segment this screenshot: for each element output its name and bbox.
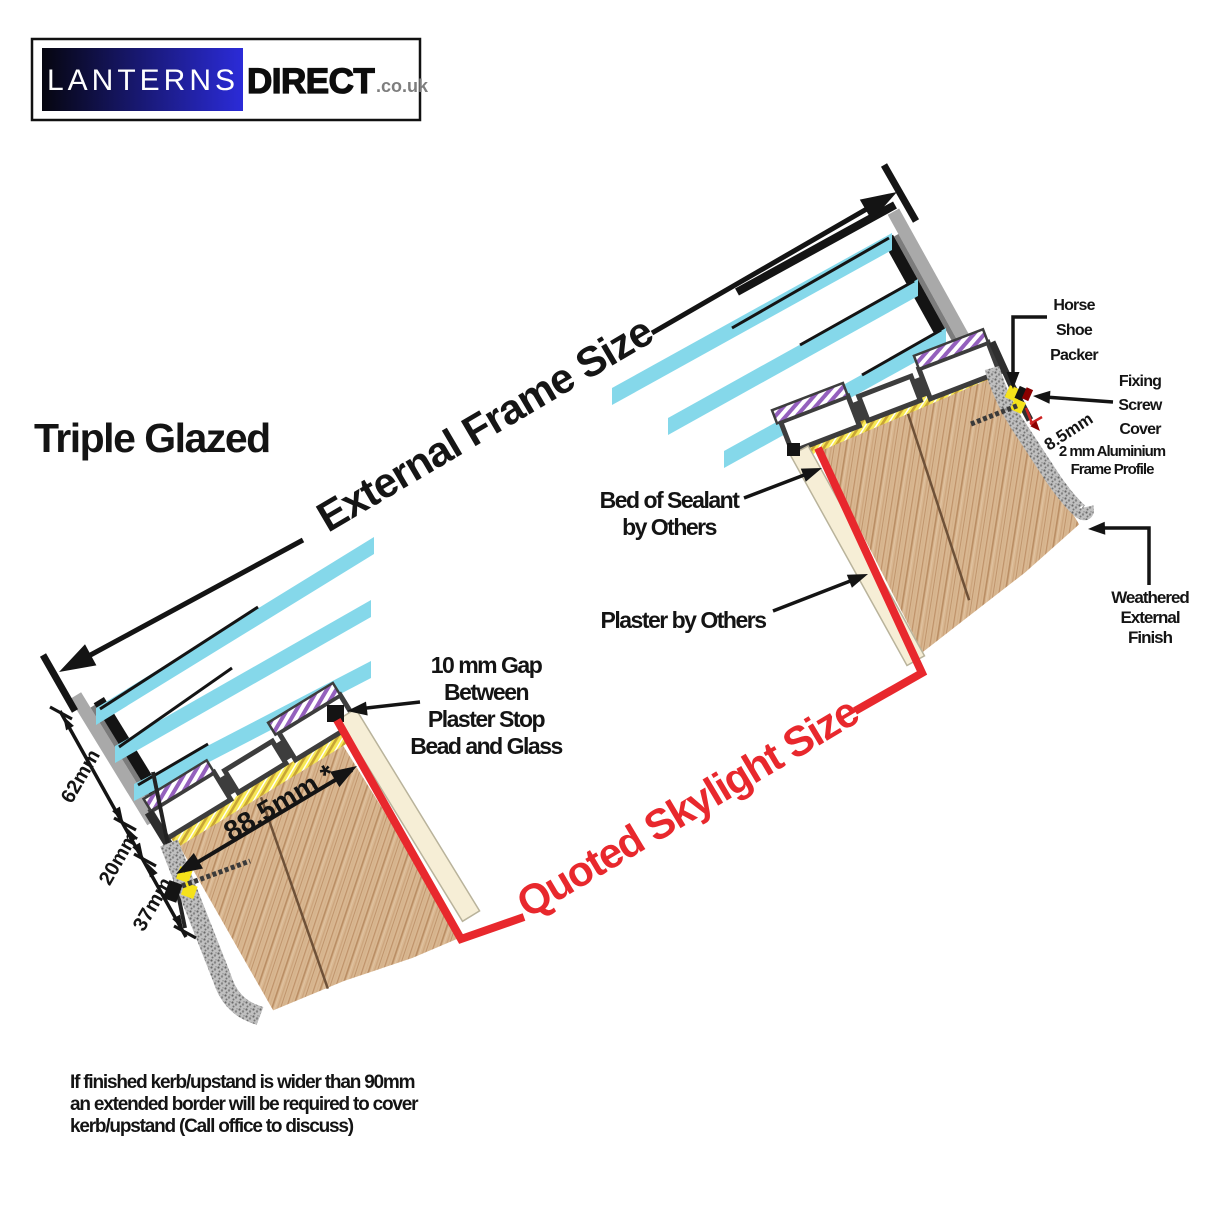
svg-text:an extended border will be req: an extended border will be required to c… — [70, 1094, 419, 1115]
svg-text:Packer: Packer — [1050, 347, 1098, 364]
svg-text:Finish: Finish — [1128, 628, 1173, 647]
svg-text:.co.uk: .co.uk — [376, 76, 429, 96]
svg-text:Bed of Sealant: Bed of Sealant — [600, 487, 741, 513]
svg-text:by Others: by Others — [622, 514, 717, 540]
svg-text:Fixing: Fixing — [1119, 373, 1161, 390]
svg-text:Between: Between — [444, 679, 529, 705]
svg-text:Plaster by Others: Plaster by Others — [601, 607, 767, 633]
svg-text:If finished kerb/upstand is wi: If finished kerb/upstand is wider than 9… — [70, 1072, 415, 1093]
svg-text:Screw: Screw — [1118, 397, 1162, 414]
svg-text:20mm: 20mm — [95, 828, 143, 889]
svg-text:Quoted Skylight Size: Quoted Skylight Size — [509, 688, 866, 927]
svg-text:2 mm Aluminium: 2 mm Aluminium — [1059, 443, 1166, 460]
svg-text:10 mm Gap: 10 mm Gap — [431, 652, 543, 678]
svg-text:Cover: Cover — [1119, 421, 1161, 438]
svg-text:Bead and Glass: Bead and Glass — [410, 733, 562, 759]
svg-text:Triple Glazed: Triple Glazed — [34, 415, 270, 461]
svg-text:Frame Profile: Frame Profile — [1071, 461, 1155, 478]
svg-text:Weathered: Weathered — [1111, 588, 1189, 607]
svg-text:LANTERNS: LANTERNS — [47, 64, 239, 97]
svg-text:Shoe: Shoe — [1056, 322, 1093, 339]
svg-text:kerb/upstand (Call office to d: kerb/upstand (Call office to discuss) — [70, 1116, 354, 1137]
svg-text:External: External — [1120, 608, 1179, 627]
svg-text:Horse: Horse — [1053, 297, 1095, 314]
svg-text:DIRECT: DIRECT — [247, 62, 374, 101]
svg-text:Plaster Stop: Plaster Stop — [428, 706, 546, 732]
